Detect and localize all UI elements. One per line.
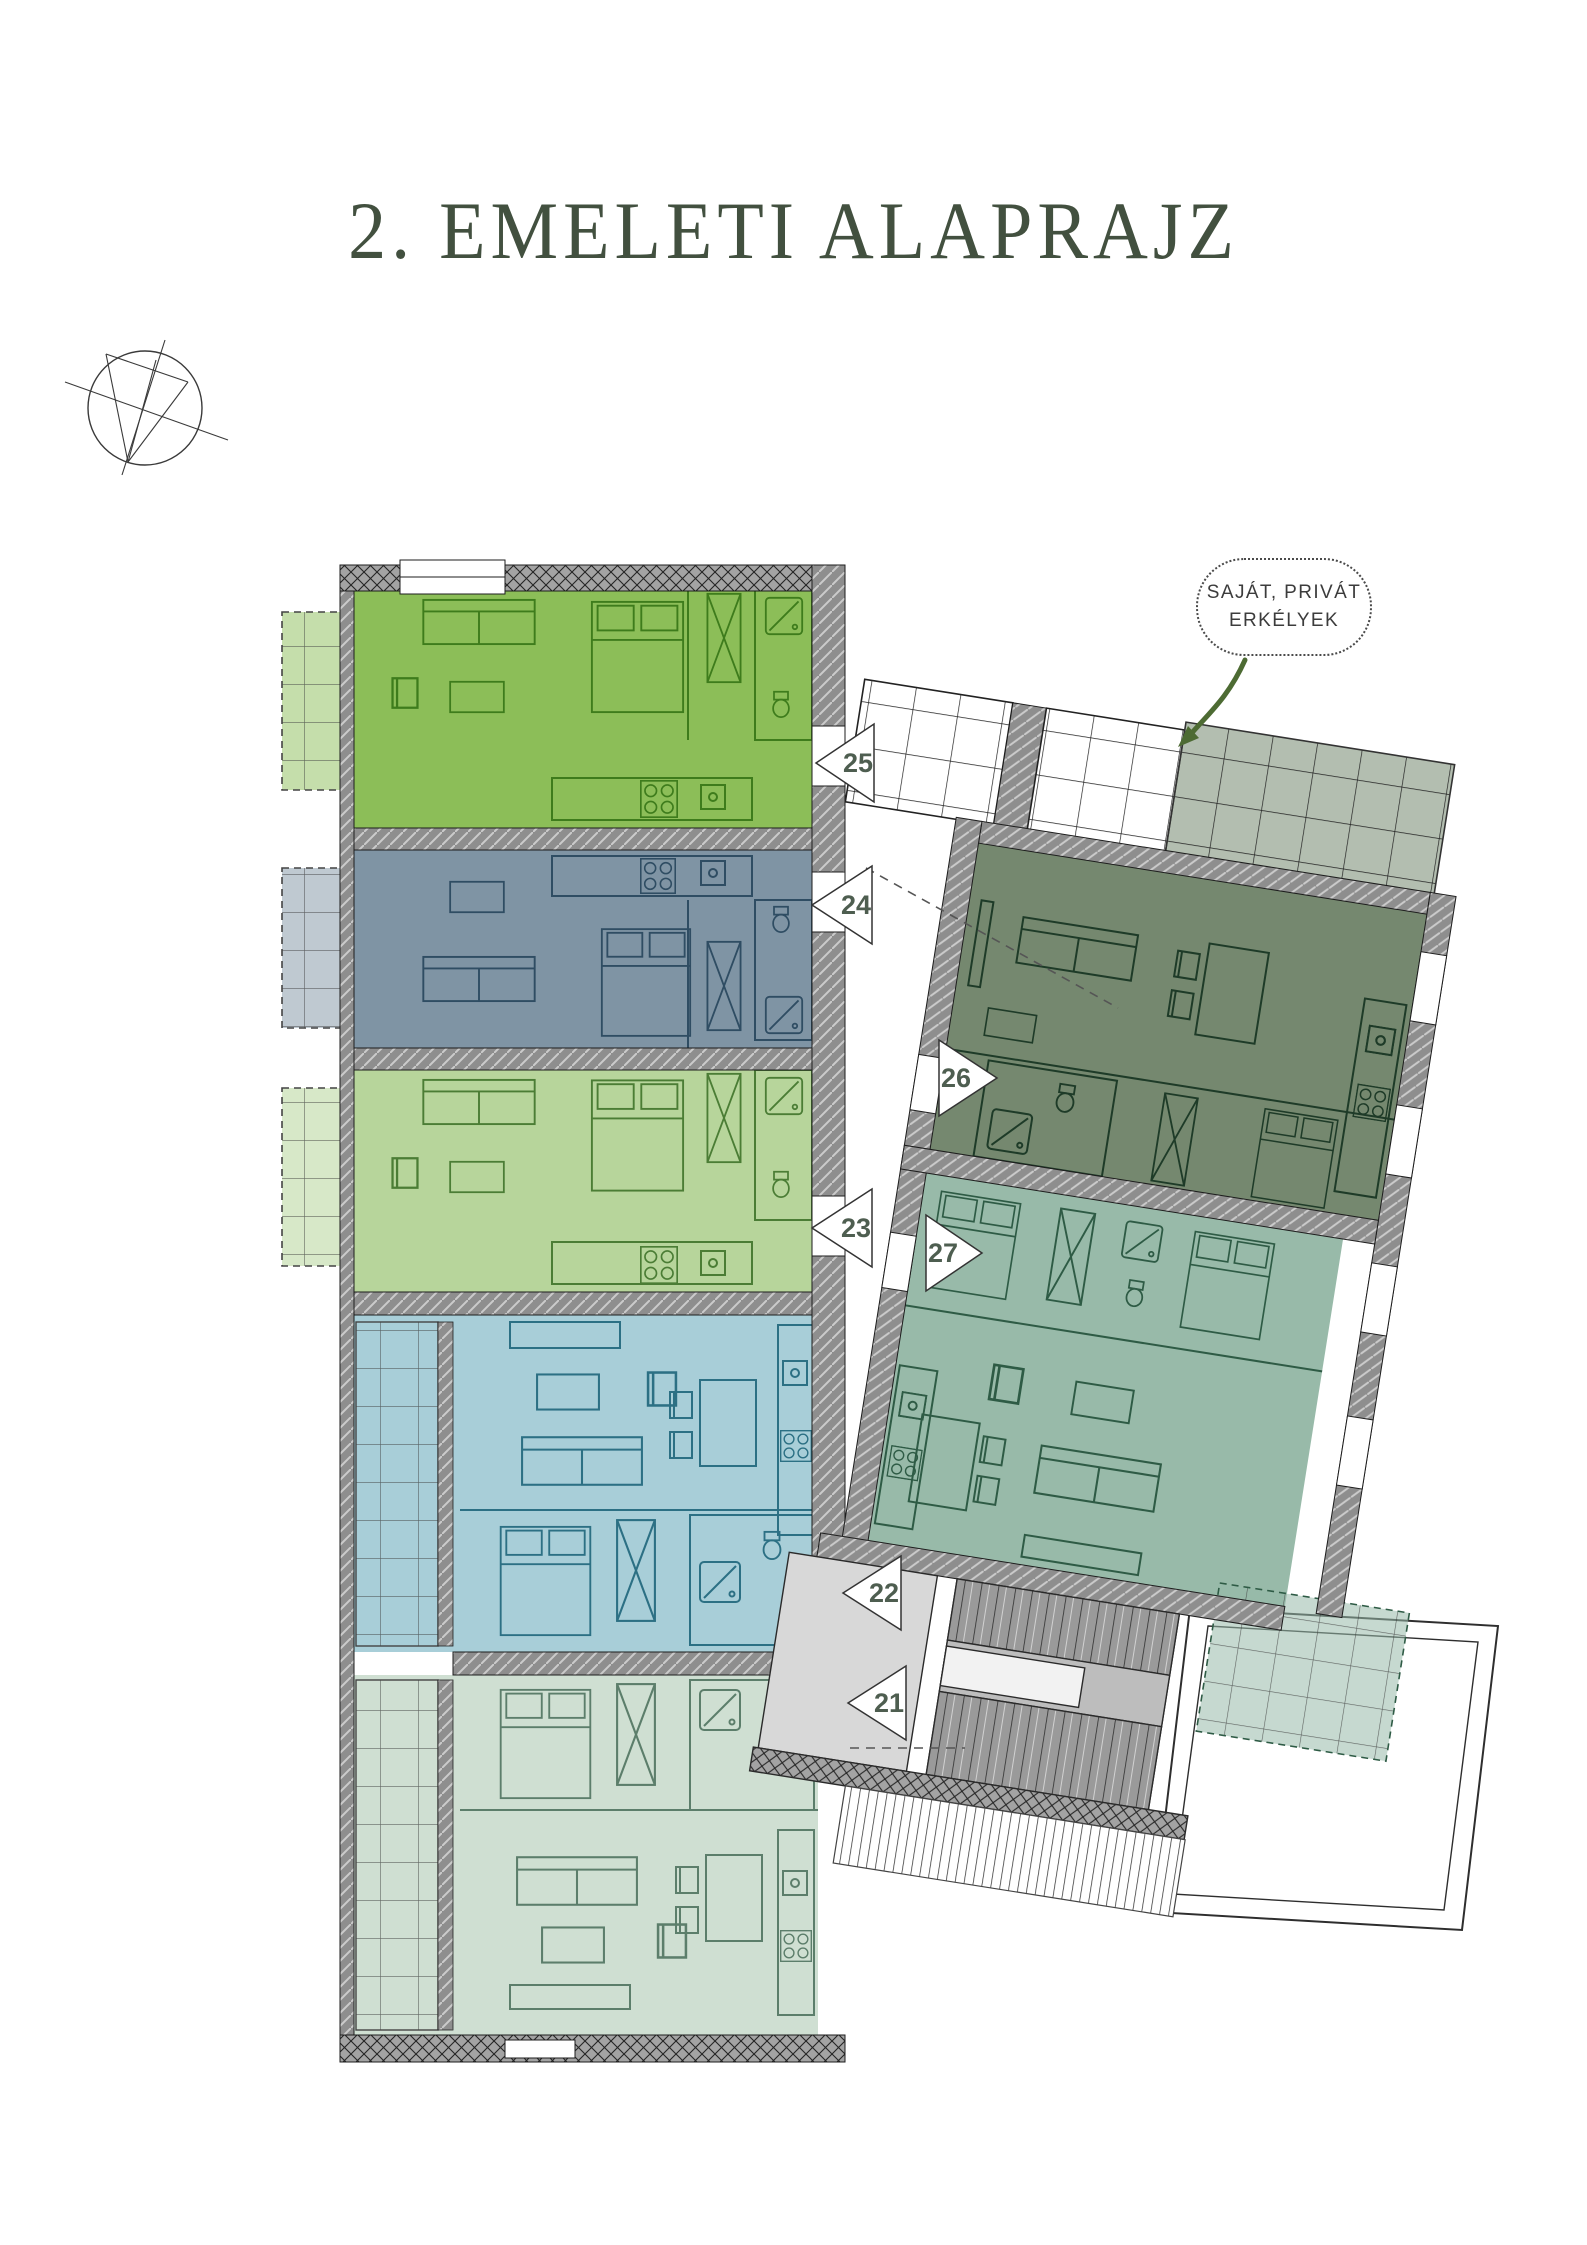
- left-wing: [282, 560, 845, 2062]
- svg-text:21: 21: [874, 1688, 904, 1718]
- walkway-balcony-b: [1027, 708, 1185, 852]
- north-compass-icon: [65, 340, 228, 475]
- balcony-22: [356, 1322, 453, 1646]
- svg-text:23: 23: [841, 1213, 871, 1243]
- svg-text:27: 27: [928, 1238, 958, 1268]
- apartment-25: [352, 590, 812, 828]
- apartment-24: [352, 850, 812, 1048]
- svg-text:25: 25: [843, 748, 873, 778]
- apartment-27: [844, 1169, 1343, 1606]
- svg-text:26: 26: [941, 1063, 971, 1093]
- floor-plan-canvas: 25 24 23 22 21 26 27: [0, 0, 1587, 2245]
- apartment-23: [352, 1070, 812, 1292]
- svg-text:24: 24: [841, 890, 871, 920]
- balcony-21: [356, 1680, 453, 2030]
- svg-text:22: 22: [869, 1578, 899, 1608]
